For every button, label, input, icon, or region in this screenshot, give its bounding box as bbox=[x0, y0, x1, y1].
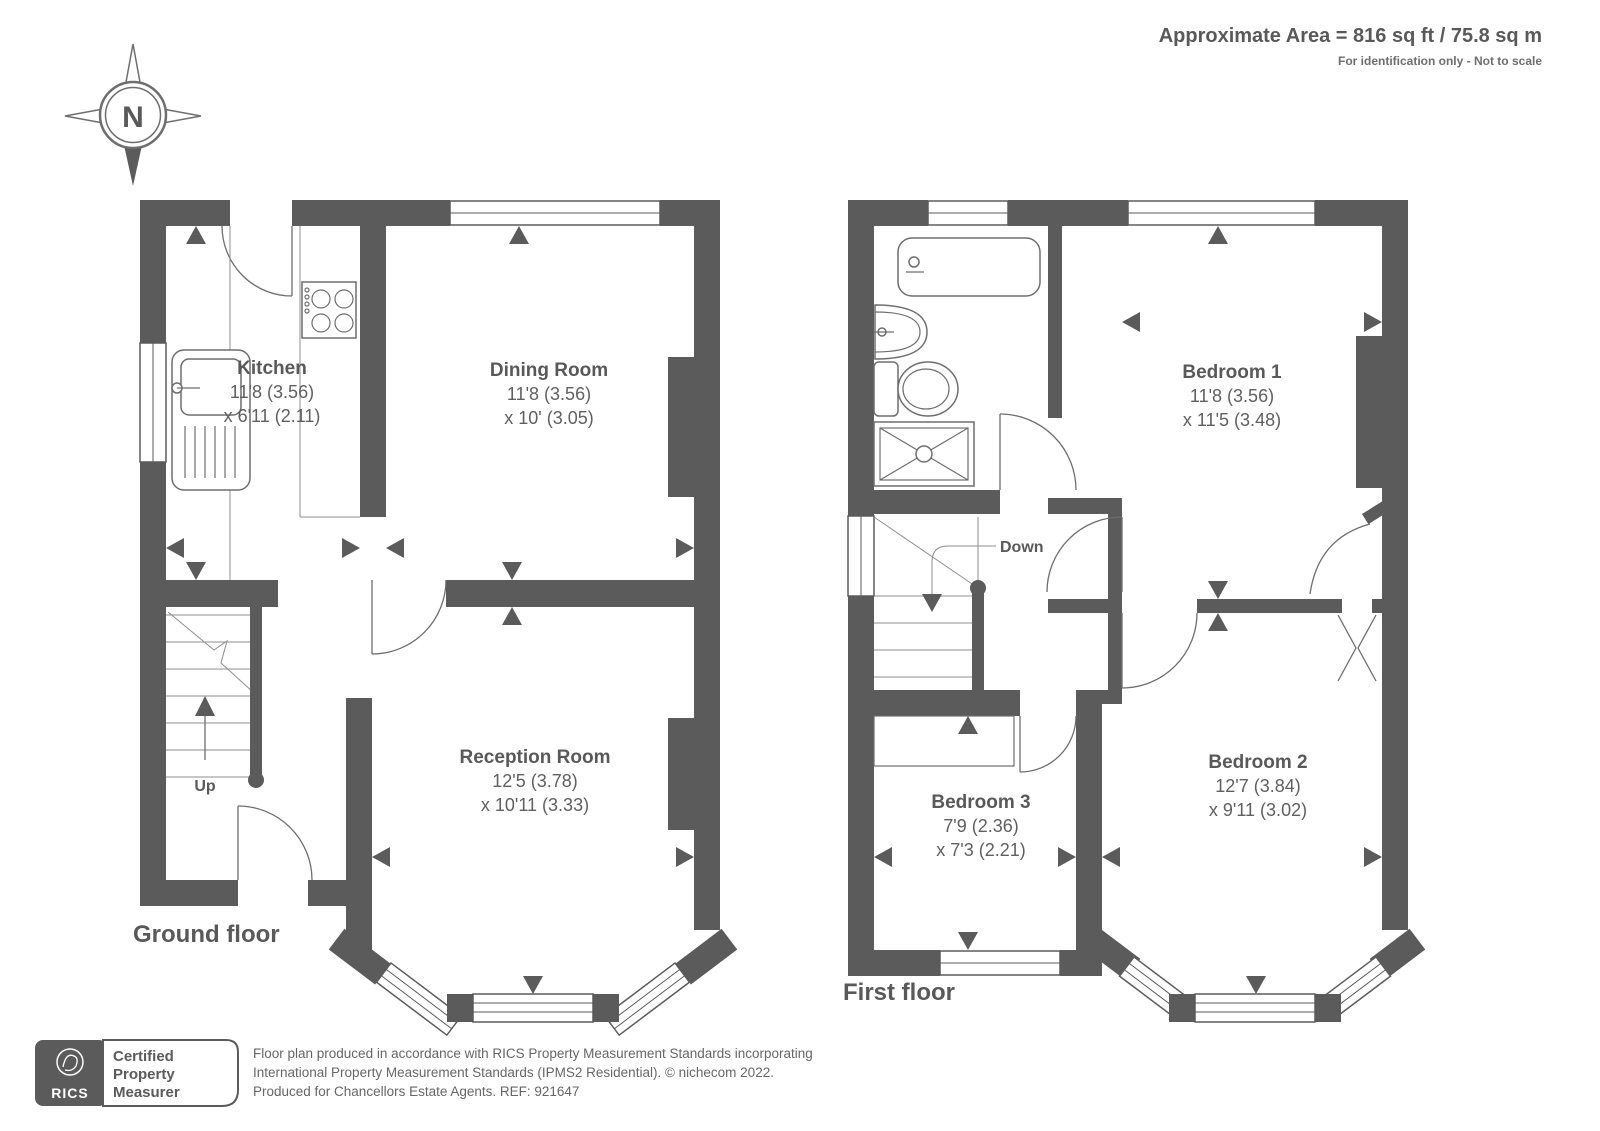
bedroom1-dim2: x 11'5 (3.48) bbox=[1183, 410, 1281, 430]
bathroom-fixtures bbox=[874, 238, 1040, 486]
bedroom1-name: Bedroom 1 bbox=[1182, 362, 1282, 383]
dining-room-dim2: x 10' (3.05) bbox=[504, 408, 593, 428]
down-label: Down bbox=[1000, 539, 1044, 556]
reception-room-dim1: 12'5 (3.78) bbox=[492, 771, 578, 791]
stair-winder-line bbox=[874, 517, 978, 588]
rics-badge: RICS Certified Property Measurer bbox=[35, 1040, 238, 1106]
compass-rose-icon: N bbox=[65, 44, 201, 186]
approximate-area-text: Approximate Area = 816 sq ft / 75.8 sq m bbox=[1159, 25, 1542, 47]
ground-floor-walls bbox=[140, 200, 720, 955]
footer-disclaimer: Floor plan produced in accordance with R… bbox=[253, 1046, 813, 1099]
bedroom1-dim1: 11'8 (3.56) bbox=[1190, 386, 1274, 406]
bedroom3-dim1: 7'9 (2.36) bbox=[943, 816, 1018, 836]
disclaimer-line3: Produced for Chancellors Estate Agents. … bbox=[253, 1084, 579, 1099]
bedroom3-window bbox=[940, 951, 1060, 975]
hob-icon bbox=[302, 282, 356, 338]
first-floor-plan: Down bbox=[843, 200, 1425, 1022]
bedroom1-closet-door bbox=[1310, 499, 1392, 594]
first-floor-label: First floor bbox=[843, 979, 955, 1006]
basin-icon bbox=[874, 305, 927, 359]
kitchen-window bbox=[140, 343, 166, 462]
dining-chimney-breast bbox=[668, 357, 694, 497]
down-leader-line bbox=[932, 546, 996, 594]
kitchen-door bbox=[222, 226, 292, 296]
identification-note: For identification only - Not to scale bbox=[1338, 54, 1542, 68]
ground-floor-arrows bbox=[166, 226, 694, 994]
dining-reception-wall bbox=[446, 580, 694, 607]
down-arrow bbox=[922, 594, 942, 612]
floorplan-page: Approximate Area = 816 sq ft / 75.8 sq m… bbox=[0, 0, 1600, 1131]
dining-room-name: Dining Room bbox=[490, 360, 608, 381]
bedroom1-chimney-breast bbox=[1356, 336, 1382, 488]
badge-line2: Property bbox=[113, 1066, 175, 1083]
badge-line1: Certified bbox=[113, 1048, 174, 1065]
bathroom-door bbox=[1000, 414, 1076, 490]
kitchen-dim2: x 6'11 (2.11) bbox=[224, 406, 321, 426]
bedroom1-window bbox=[1128, 201, 1315, 225]
shower-icon bbox=[874, 422, 974, 486]
bathroom-window bbox=[928, 201, 1008, 225]
bedroom2-left-wall bbox=[1108, 613, 1122, 697]
closet-bifold-doors bbox=[1338, 615, 1376, 681]
bedroom3-dim2: x 7'3 (2.21) bbox=[936, 840, 1025, 860]
reception-chimney-breast bbox=[668, 718, 694, 830]
reception-room-dim2: x 10'11 (3.33) bbox=[481, 795, 589, 815]
bedroom3-door bbox=[1020, 716, 1076, 772]
compass-north-label: N bbox=[122, 101, 144, 134]
stair-break-line bbox=[168, 612, 254, 693]
header: Approximate Area = 816 sq ft / 75.8 sq m… bbox=[1159, 25, 1543, 68]
toilet-icon bbox=[874, 362, 958, 416]
kitchen-dim1: 11'8 (3.56) bbox=[230, 382, 314, 402]
bedroom2-dim2: x 9'11 (3.02) bbox=[1209, 800, 1307, 820]
up-label: Up bbox=[194, 778, 216, 795]
bedroom1-left-wall bbox=[1108, 514, 1122, 599]
up-arrow bbox=[195, 696, 215, 716]
bathroom-right-wall bbox=[1048, 226, 1062, 418]
bedroom1-bedroom2-divider bbox=[1197, 599, 1332, 613]
stair-stringer bbox=[250, 607, 262, 780]
ground-floor-label: Ground floor bbox=[133, 921, 280, 948]
reception-door bbox=[372, 580, 446, 654]
front-door bbox=[238, 806, 312, 880]
reception-left-wall bbox=[346, 698, 372, 955]
newel-post bbox=[970, 580, 986, 596]
bedroom2-dim1: 12'7 (3.84) bbox=[1215, 776, 1301, 796]
newel-post bbox=[248, 772, 264, 788]
landing-window bbox=[848, 516, 874, 596]
badge-line3: Measurer bbox=[113, 1084, 180, 1101]
landing-bedroom3-wall bbox=[874, 690, 1020, 716]
bedroom2-door bbox=[1122, 613, 1197, 688]
first-floor-doors bbox=[1000, 414, 1392, 772]
bedroom3-left-wall bbox=[848, 690, 874, 976]
disclaimer-line2: International Property Measurement Stand… bbox=[253, 1065, 774, 1080]
stair-bulkhead bbox=[874, 716, 1014, 766]
dining-window bbox=[450, 201, 660, 225]
bedroom3-name: Bedroom 3 bbox=[931, 792, 1030, 813]
rics-org-label: RICS bbox=[51, 1085, 88, 1101]
bathroom-bottom-wall bbox=[874, 490, 1000, 514]
kitchen-name: Kitchen bbox=[237, 358, 307, 379]
reception-room-name: Reception Room bbox=[460, 747, 611, 768]
stair-stringer bbox=[972, 588, 984, 690]
bedroom2-bay-window bbox=[1085, 929, 1425, 1022]
disclaimer-line1: Floor plan produced in accordance with R… bbox=[253, 1046, 813, 1061]
ground-floor-plan: Up bbox=[133, 200, 737, 1035]
bedroom2-bedroom3-divider bbox=[1076, 690, 1102, 950]
kitchen-dining-divider bbox=[360, 226, 386, 517]
first-floor-stairs: Down bbox=[874, 517, 1044, 766]
kitchen-fixtures bbox=[172, 226, 360, 580]
kitchen-hall-wall bbox=[166, 580, 278, 607]
floorplan-canvas: Approximate Area = 816 sq ft / 75.8 sq m… bbox=[0, 0, 1600, 1131]
bathtub-icon bbox=[898, 238, 1040, 296]
ground-floor-stairs: Up bbox=[166, 607, 264, 795]
footer: RICS Certified Property Measurer Floor p… bbox=[35, 1040, 813, 1106]
dining-room-dim1: 11'8 (3.56) bbox=[507, 384, 591, 404]
bedroom2-name: Bedroom 2 bbox=[1208, 752, 1307, 773]
